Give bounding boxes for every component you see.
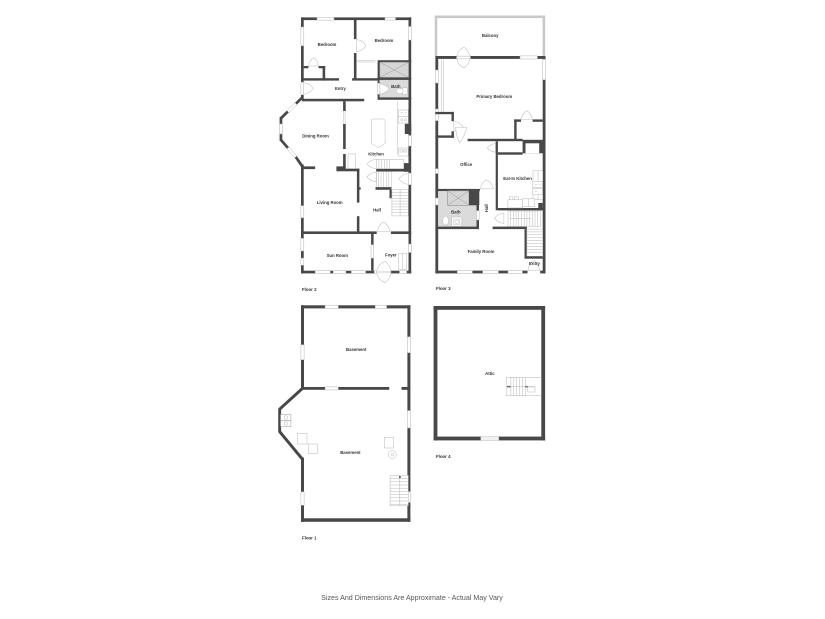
svg-text:Bedroom: Bedroom — [375, 38, 394, 43]
svg-text:Basement: Basement — [346, 347, 367, 352]
svg-text:Dining Room: Dining Room — [302, 133, 329, 138]
svg-text:Entry: Entry — [335, 86, 347, 91]
svg-text:Bath: Bath — [451, 210, 461, 215]
svg-text:Floor 1: Floor 1 — [302, 536, 317, 541]
svg-text:Basement: Basement — [340, 450, 361, 455]
svg-text:Living Room: Living Room — [317, 200, 343, 205]
svg-text:Balcony: Balcony — [482, 33, 499, 38]
svg-text:Entry: Entry — [529, 261, 541, 266]
svg-text:Family Room: Family Room — [468, 249, 495, 254]
svg-text:Kitchen: Kitchen — [368, 151, 384, 156]
svg-text:Office: Office — [460, 162, 473, 167]
svg-text:Hall: Hall — [484, 204, 489, 212]
svg-text:Floor 3: Floor 3 — [436, 286, 451, 291]
svg-text:Floor 4: Floor 4 — [436, 454, 451, 459]
svg-text:Foyer: Foyer — [385, 253, 397, 258]
svg-text:Primary Bedroom: Primary Bedroom — [476, 94, 512, 99]
svg-text:Attic: Attic — [485, 371, 495, 376]
svg-text:Bath: Bath — [391, 84, 401, 89]
svg-text:Sizes And Dimensions Are Appro: Sizes And Dimensions Are Approximate - A… — [321, 594, 503, 602]
svg-text:Hall: Hall — [373, 207, 381, 212]
svg-text:Bedroom: Bedroom — [318, 42, 337, 47]
svg-text:Sun Room: Sun Room — [327, 253, 349, 258]
svg-text:Eat-In Kitchen: Eat-In Kitchen — [503, 176, 532, 181]
svg-text:Floor 2: Floor 2 — [302, 287, 317, 292]
